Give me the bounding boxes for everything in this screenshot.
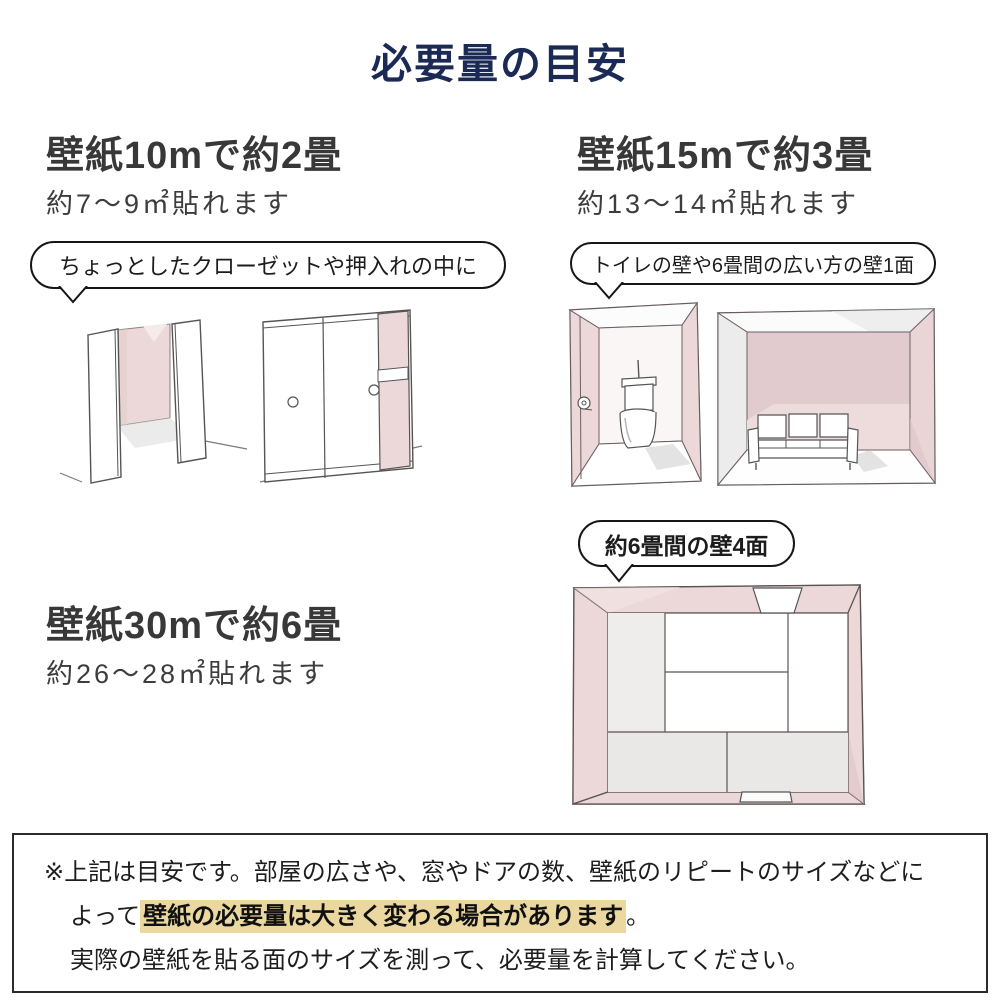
section-15m-bubble: トイレの壁や6畳間の広い方の壁1面: [570, 242, 936, 285]
section-10m-subtext: 約7〜9㎡貼れます: [46, 182, 292, 221]
section-10m-bubble: ちょっとしたクローゼットや押入れの中に: [30, 241, 506, 289]
wallpaper-quantity-infographic: 必要量の目安 壁紙10mで約2畳 約7〜9㎡貼れます ちょっとしたクローゼットや…: [0, 0, 1000, 1000]
section-30m-heading: 壁紙30mで約6畳: [46, 594, 342, 649]
sliding-door-closet-illustration: [252, 298, 432, 493]
toilet-room-illustration: [565, 298, 705, 488]
section-10m-bubble-text: ちょっとしたクローゼットや押入れの中に: [59, 249, 477, 281]
footnote-box: ※上記は目安です。部屋の広さや、窓やドアの数、壁紙のリピートのサイズなどに よっ…: [12, 833, 988, 993]
section-15m-heading: 壁紙15mで約3畳: [577, 124, 873, 179]
section-15m-bubble-text: トイレの壁や6畳間の広い方の壁1面: [592, 249, 914, 278]
section-15m-subtext: 約13〜14㎡貼れます: [577, 182, 859, 221]
section-30m-subtext: 約26〜28㎡貼れます: [46, 652, 328, 691]
footnote-highlight: 壁紙の必要量は大きく変わる場合があります: [140, 900, 626, 933]
footnote-line-2: よって壁紙の必要量は大きく変わる場合があります。: [44, 900, 966, 934]
footnote-line-1-text: ※上記は目安です。部屋の広さや、窓やドアの数、壁紙のリピートのサイズなどに: [44, 859, 924, 886]
section-30m-bubble-tail: [604, 564, 634, 583]
footnote-line-2-prefix: よって: [70, 903, 140, 930]
section-30m-bubble: 約6畳間の壁4面: [578, 520, 795, 567]
six-mat-room-top-view-illustration: [570, 582, 870, 810]
section-15m-bubble-tail: [594, 282, 624, 300]
section-10m-bubble-tail: [58, 286, 88, 304]
open-closet-illustration: [55, 300, 255, 490]
footnote-line-2-suffix: 。: [626, 903, 650, 930]
footnote-line-1: ※上記は目安です。部屋の広さや、窓やドアの数、壁紙のリピートのサイズなどに: [44, 856, 966, 890]
section-30m-bubble-text: 約6畳間の壁4面: [605, 527, 769, 561]
footnote-line-3-text: 実際の壁紙を貼る面のサイズを測って、必要量を計算してください。: [70, 947, 809, 974]
page-title: 必要量の目安: [0, 30, 1000, 90]
footnote-line-3: 実際の壁紙を貼る面のサイズを測って、必要量を計算してください。: [44, 944, 966, 978]
six-mat-room-one-wall-illustration: [712, 298, 937, 488]
section-10m-heading: 壁紙10mで約2畳: [46, 124, 342, 179]
